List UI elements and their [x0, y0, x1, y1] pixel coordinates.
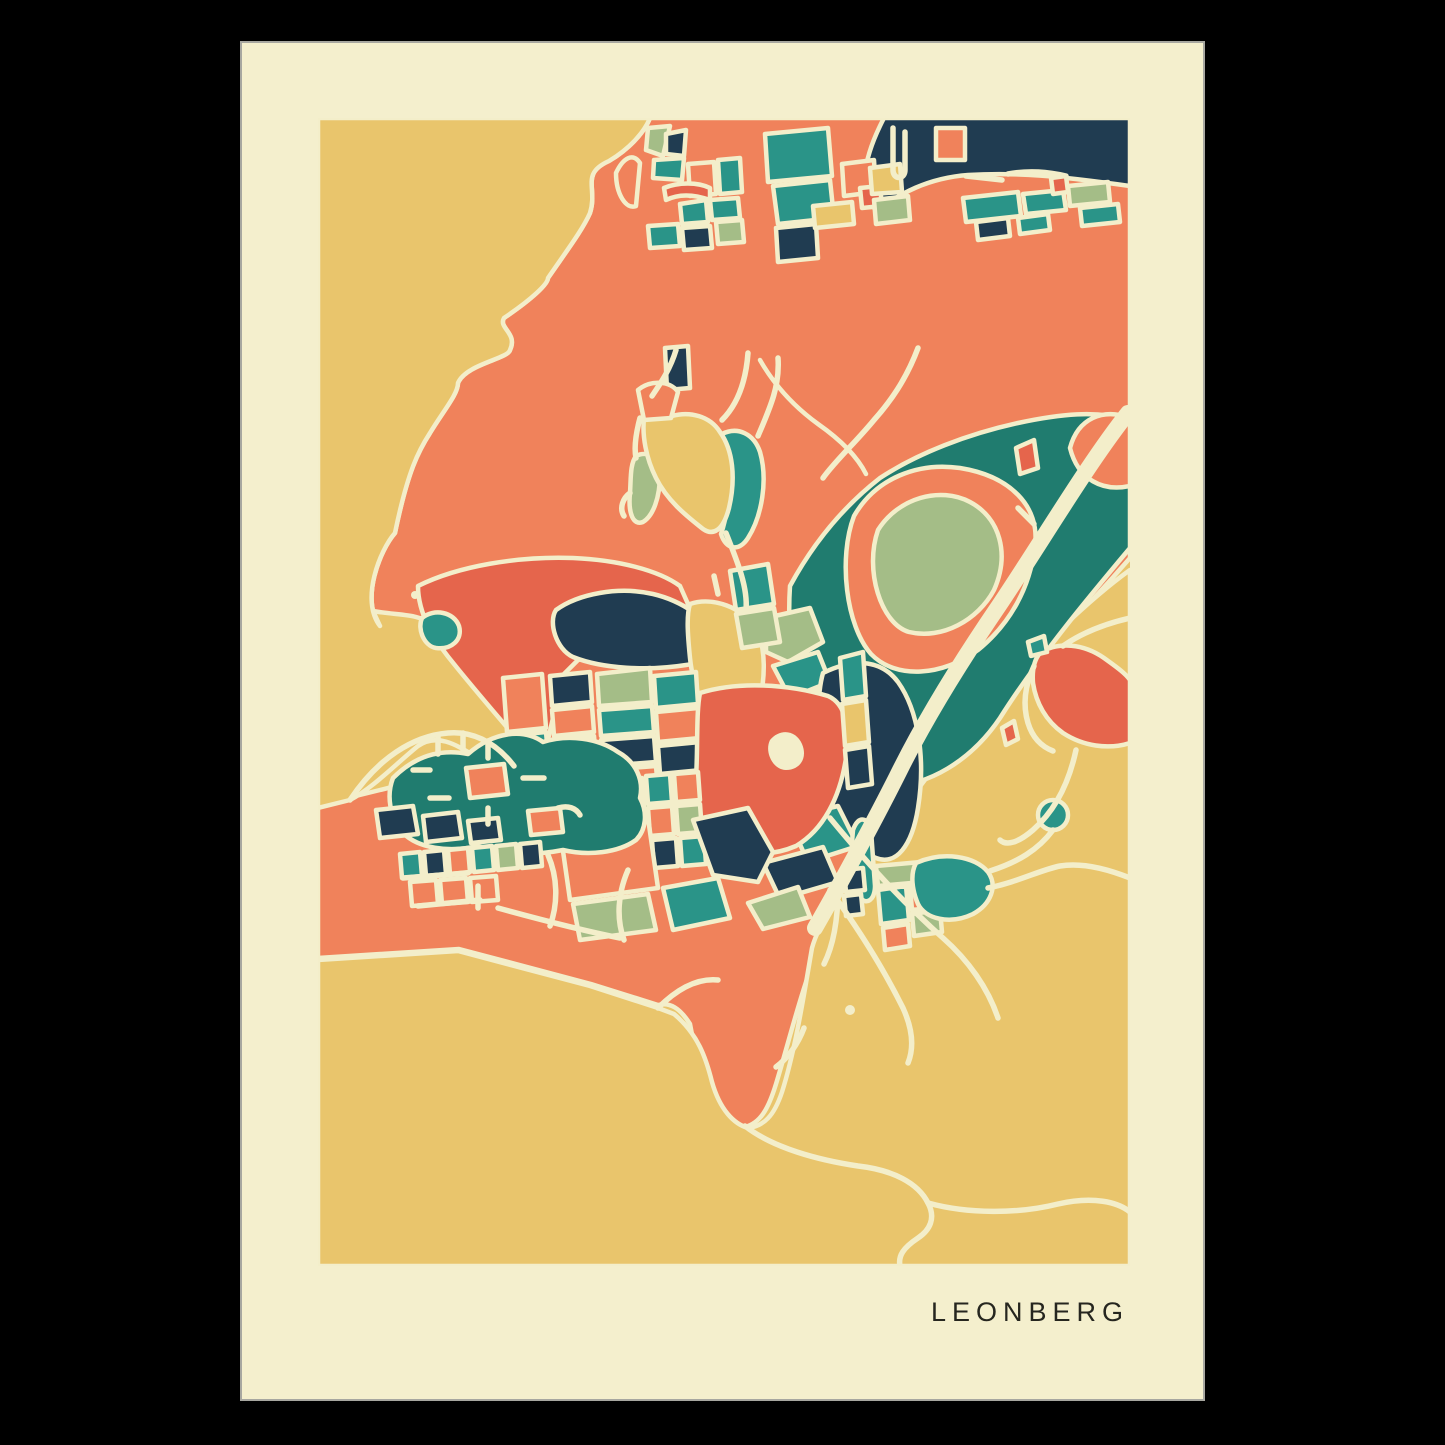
page-background: { "poster": { "title": "LEONBERG" }, "pa… [0, 0, 1445, 1445]
teal-lens [912, 856, 992, 919]
map-art-area [318, 118, 1130, 1266]
teal-pocket [420, 612, 459, 648]
leonberg-map-art [318, 118, 1130, 1266]
map-poster: LEONBERG [242, 43, 1203, 1399]
poster-title: LEONBERG [931, 1297, 1129, 1328]
road-junction-dot [411, 591, 419, 599]
forest-red-notch [1016, 440, 1038, 474]
parcel [936, 128, 965, 160]
road-dot [845, 1005, 855, 1015]
